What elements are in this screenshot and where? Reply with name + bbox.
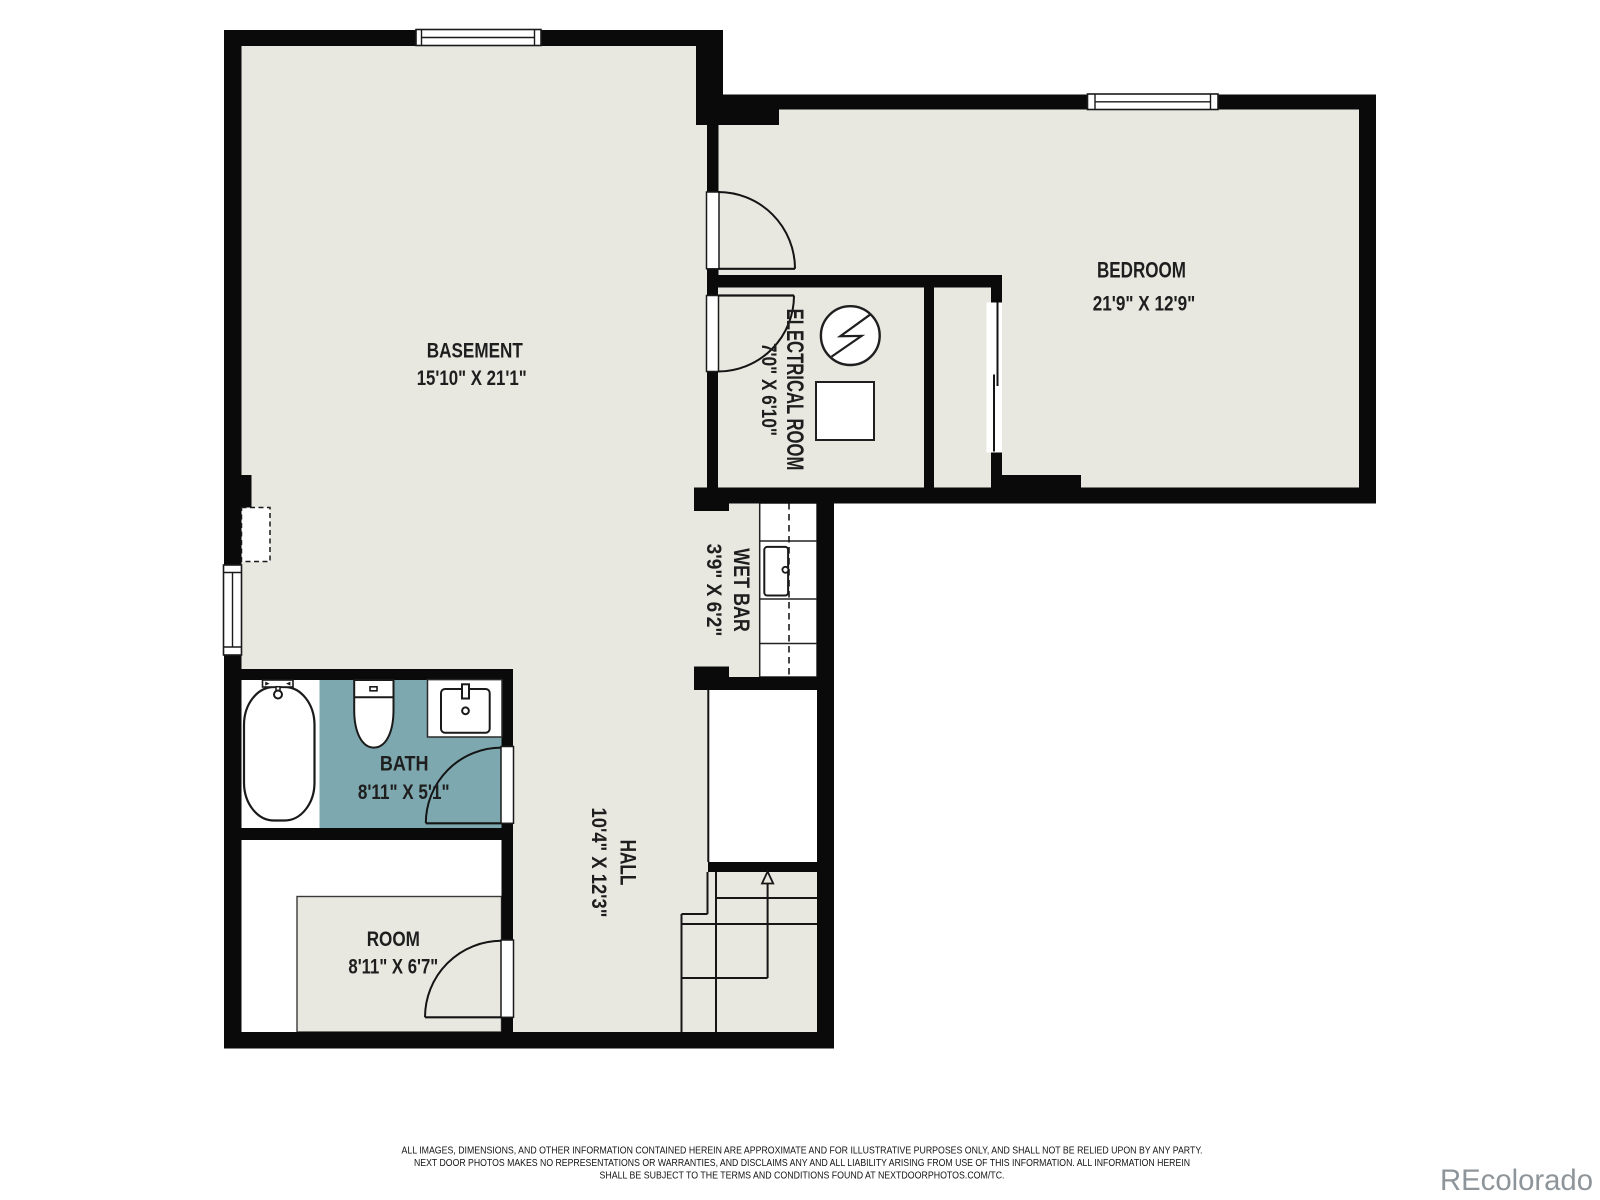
svg-text:8'11" X 5'1": 8'11" X 5'1"	[358, 781, 450, 804]
svg-text:ROOM: ROOM	[367, 928, 420, 951]
svg-text:WET BAR: WET BAR	[729, 548, 754, 632]
svg-text:3'9" X 6'2": 3'9" X 6'2"	[702, 544, 725, 637]
svg-text:SHALL BE SUBJECT TO THE TERMS: SHALL BE SUBJECT TO THE TERMS AND CONDIT…	[600, 1171, 1005, 1182]
svg-text:ALL IMAGES, DIMENSIONS, AND OT: ALL IMAGES, DIMENSIONS, AND OTHER INFORM…	[402, 1146, 1203, 1157]
svg-text:21'9" X 12'9": 21'9" X 12'9"	[1093, 293, 1196, 316]
svg-text:BEDROOM: BEDROOM	[1097, 258, 1186, 283]
svg-text:REcolorado: REcolorado	[1440, 1164, 1593, 1197]
svg-text:8'11" X 6'7": 8'11" X 6'7"	[348, 956, 438, 979]
svg-text:BATH: BATH	[380, 753, 429, 776]
svg-text:15'10" X 21'1": 15'10" X 21'1"	[417, 367, 527, 390]
svg-text:ELECTRICAL ROOM: ELECTRICAL ROOM	[781, 309, 808, 471]
svg-text:HALL: HALL	[616, 840, 641, 886]
svg-text:BASEMENT: BASEMENT	[427, 340, 523, 363]
svg-text:7'0" X 6'10": 7'0" X 6'10"	[757, 343, 780, 436]
svg-text:10'4" X 12'3": 10'4" X 12'3"	[587, 808, 610, 918]
svg-text:NEXT DOOR PHOTOS MAKES NO REPR: NEXT DOOR PHOTOS MAKES NO REPRESENTATION…	[414, 1158, 1190, 1169]
